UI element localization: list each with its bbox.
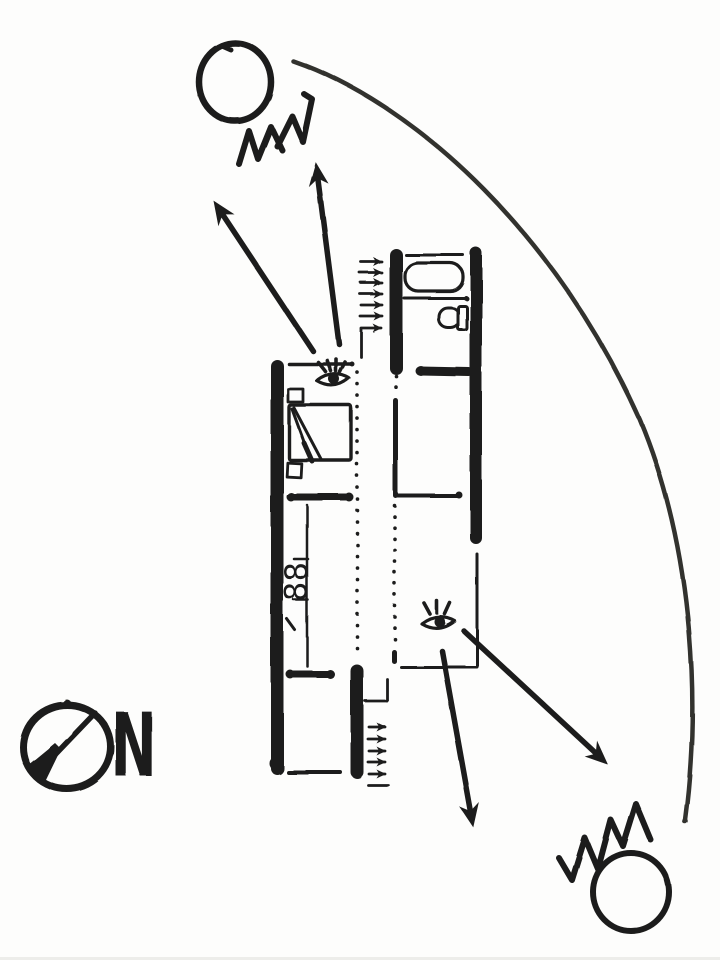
sun-icon-bottom bbox=[559, 804, 669, 931]
mid-room bbox=[396, 401, 463, 499]
north-arrow-icon: N bbox=[23, 695, 157, 797]
eye-pupil bbox=[329, 374, 340, 385]
compass-north-label: N bbox=[111, 695, 157, 797]
sun-rays-icon bbox=[559, 804, 651, 880]
nightstand-icon bbox=[287, 463, 302, 478]
wall-foot-blob bbox=[269, 756, 283, 770]
wall-end-dot bbox=[416, 366, 426, 376]
wall-end-dot bbox=[287, 493, 296, 502]
compass-top-dot bbox=[63, 700, 72, 709]
corridor bbox=[357, 372, 396, 661]
cooktop-icon: 88 bbox=[279, 562, 315, 602]
sun-circle bbox=[199, 43, 271, 121]
arrow-view-south bbox=[442, 651, 472, 818]
sketch-canvas: 88 bbox=[0, 0, 720, 960]
arrow-view-southeast bbox=[464, 631, 601, 758]
wall-end-dot bbox=[350, 362, 355, 367]
eye-view-icon-living bbox=[422, 601, 455, 628]
bathroom-wall-south bbox=[420, 371, 469, 372]
bathtub-icon bbox=[405, 263, 463, 291]
wall-end-dot bbox=[286, 670, 295, 679]
sun-path-arc-end-dot bbox=[682, 818, 688, 824]
sun-rays-icon bbox=[277, 94, 312, 146]
compass-circle bbox=[23, 705, 111, 789]
toilet-tank bbox=[458, 306, 467, 330]
living-room bbox=[401, 554, 477, 667]
arrow-view-north bbox=[317, 172, 339, 344]
wall-end-dot bbox=[456, 492, 463, 499]
stairs-top bbox=[360, 262, 382, 357]
west-wing: 88 bbox=[269, 362, 355, 773]
stairs-bottom bbox=[365, 679, 388, 785]
eyelash bbox=[327, 360, 331, 371]
nightstand-icon bbox=[288, 389, 303, 402]
wall-end-dot bbox=[464, 296, 469, 301]
eyelash bbox=[445, 603, 450, 614]
eye-pupil bbox=[435, 617, 446, 628]
kitchen-door-tick bbox=[287, 619, 295, 630]
sun-circle bbox=[593, 853, 669, 931]
wall-end-dot bbox=[326, 670, 335, 679]
wall-end-dot bbox=[345, 493, 354, 502]
bedroom bbox=[287, 389, 351, 477]
toilet-icon bbox=[439, 306, 467, 330]
kitchen: 88 bbox=[279, 505, 315, 666]
arrow-view-northwest bbox=[219, 209, 313, 351]
sketch-page: 88 bbox=[0, 0, 720, 960]
eyelash bbox=[424, 603, 430, 614]
